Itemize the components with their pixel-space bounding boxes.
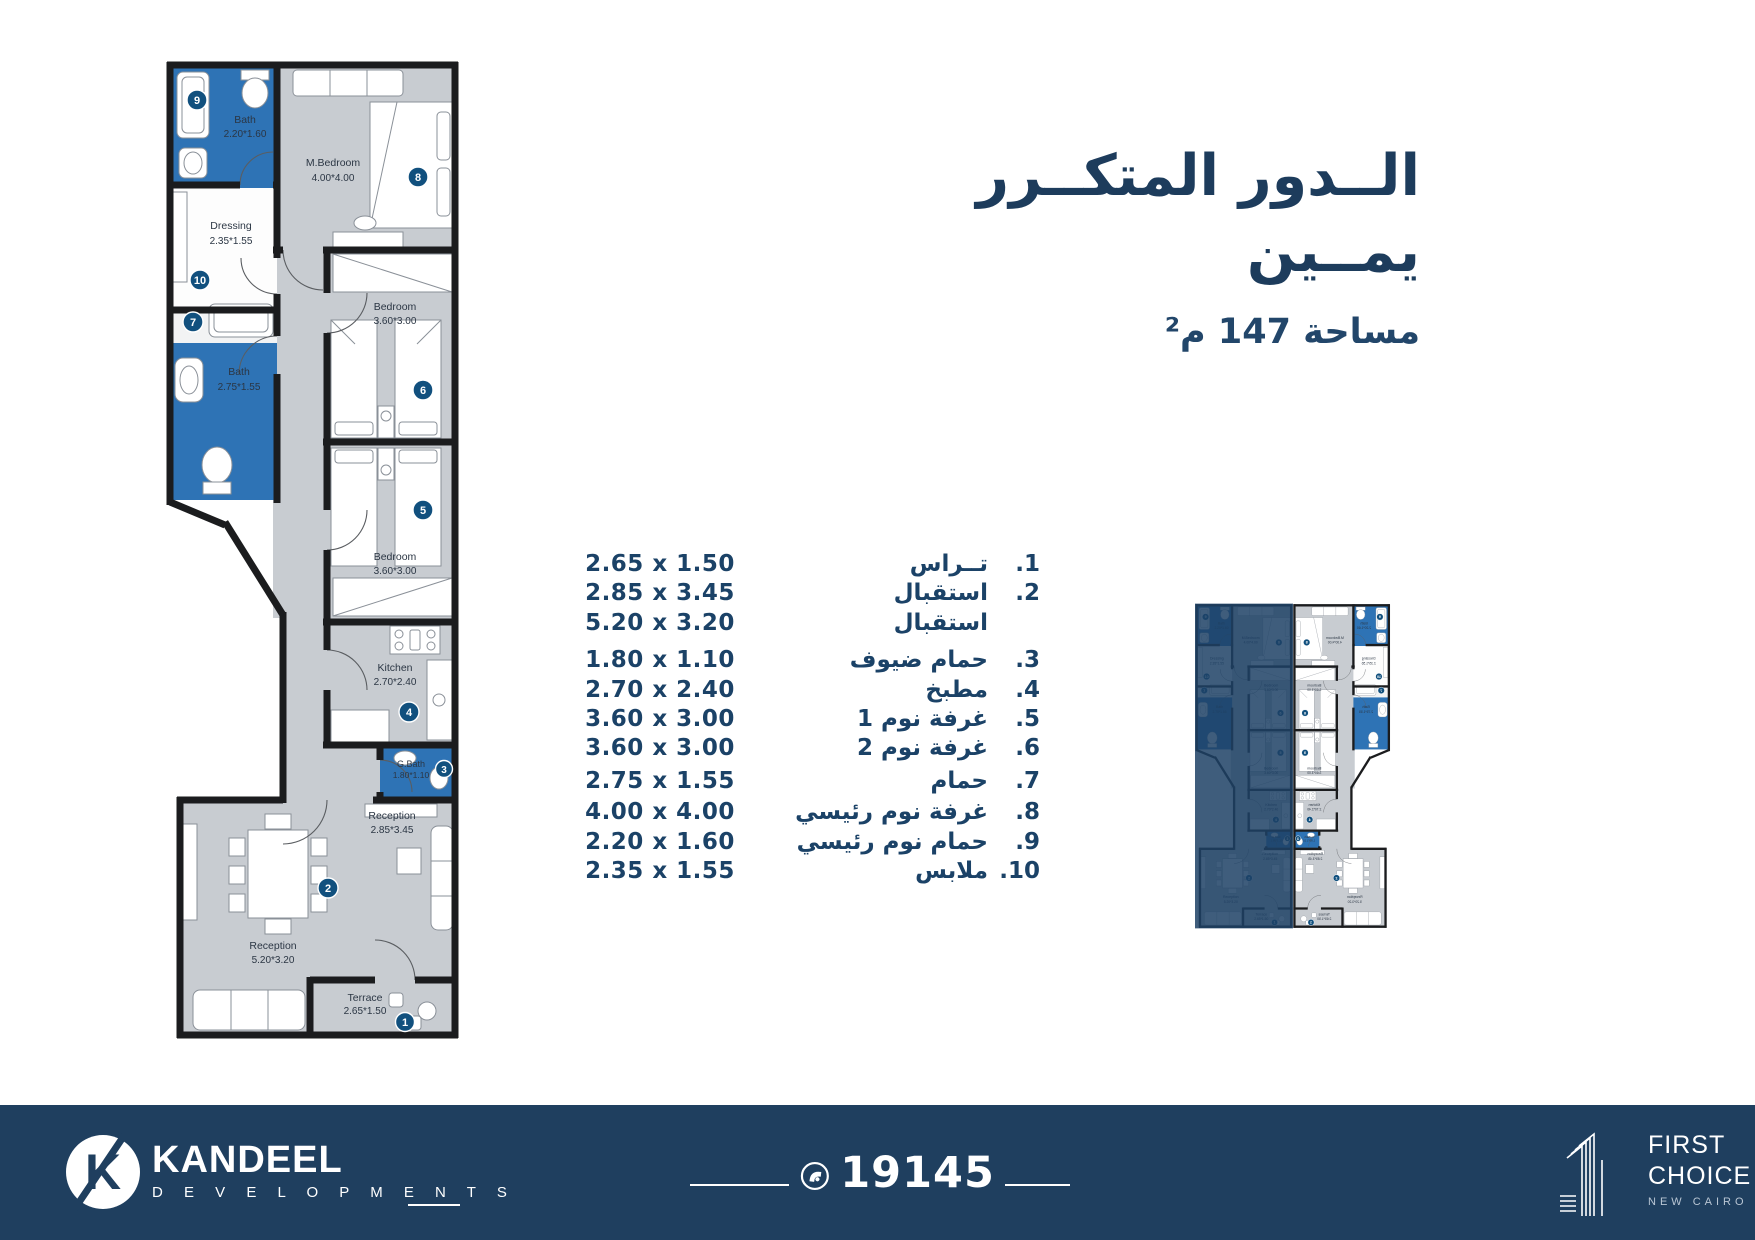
room-label: Bedroom (374, 301, 417, 313)
chair-icon (229, 866, 245, 884)
room-number-7: 7 (183, 312, 203, 332)
room-dimensions: 4.00 x 4.00 (580, 799, 740, 825)
room-label: Bath (228, 366, 250, 378)
kitchen-counter-icon (427, 660, 452, 740)
phone-number: 19145 (840, 1152, 995, 1195)
room-number: 9. (994, 829, 1040, 855)
room-dims: 3.60*3.00 (374, 316, 417, 327)
toilet-tank-icon (203, 482, 231, 494)
chair-icon (389, 993, 403, 1007)
floor-plan-svg: Bath 2.20*1.60 M.Bedroom 4.00*4.00 Dress… (165, 60, 460, 1040)
thumb-unit-right (1293, 604, 1389, 927)
svg-text:1: 1 (402, 1017, 408, 1029)
room-name: استقبال (894, 610, 988, 636)
first-choice-text: FIRST CHOICE NEW CAIRO (1648, 1130, 1751, 1208)
bed-icon (331, 320, 377, 438)
room-dims: 2.65*1.50 (344, 1006, 387, 1017)
room-number: 4. (994, 677, 1040, 703)
svg-text:4: 4 (406, 707, 413, 719)
room-number-6: 6 (413, 380, 433, 400)
sofa-icon (293, 70, 403, 96)
legend-row: 2.75 x 1.55حمام7. (560, 768, 1040, 795)
room-legend: 2.65 x 1.50تــراس1. 2.85 x 3.45استقبال2.… (560, 545, 1040, 895)
dining-table-icon (248, 830, 308, 918)
divider-line (690, 1184, 789, 1186)
legend-row: 2.85 x 3.45استقبال2. (560, 580, 1040, 607)
room-name: غرفة نوم 1 (857, 706, 988, 732)
wardrobe-icon (173, 192, 187, 282)
room-dims: 4.00*4.00 (312, 173, 355, 184)
highlighted-unit-overlay (1195, 604, 1293, 929)
room-name: ملابس (915, 858, 988, 884)
side-table-icon (397, 848, 421, 874)
title-line-2: يمــين (780, 214, 1420, 290)
svg-text:8: 8 (415, 172, 421, 184)
chair-icon (311, 838, 327, 856)
phone-block: 19145 (690, 1152, 1070, 1195)
area-text: مساحة 147 م² (780, 312, 1420, 352)
room-dims: 2.85*3.45 (371, 825, 414, 836)
legend-row: 4.00 x 4.00غرفة نوم رئيسي8. (560, 799, 1040, 826)
svg-text:2: 2 (325, 883, 331, 895)
title-block: الــدور المتكــرر يمــين مساحة 147 م² (780, 138, 1420, 352)
svg-text:6: 6 (420, 385, 426, 397)
bed-icon (395, 320, 441, 438)
toilet-icon (202, 447, 232, 483)
pillow-icon (399, 422, 437, 435)
thumbnail-svg (1195, 597, 1391, 935)
legend-row: 2.65 x 1.50تــراس1. (560, 551, 1040, 578)
room-number-5: 5 (413, 500, 433, 520)
room-label: Reception (368, 810, 415, 822)
room-number-2: 2 (318, 878, 338, 898)
room-number: 5. (994, 706, 1040, 732)
room-label: Terrace (347, 992, 382, 1004)
flyer-page: Bath 2.20*1.60 M.Bedroom 4.00*4.00 Dress… (0, 0, 1755, 1240)
room-name: مطبخ (925, 677, 988, 703)
room-number: 6. (994, 735, 1040, 761)
room-dimensions: 2.70 x 2.40 (580, 677, 740, 703)
room-name: حمام نوم رئيسي (797, 829, 988, 855)
room-dimensions: 2.85 x 3.45 (580, 580, 740, 606)
phone-icon (799, 1157, 831, 1195)
desk-icon (333, 232, 403, 247)
room-number-1: 1 (396, 1013, 415, 1032)
room-number-9: 9 (187, 90, 207, 110)
first-choice-numeral-icon (1560, 1126, 1644, 1220)
room-name: استقبال (894, 580, 988, 606)
room-name: حمام (931, 768, 989, 794)
legend-row: 2.20 x 1.60حمام نوم رئيسي9. (560, 829, 1040, 856)
room-dims: 2.75*1.55 (218, 382, 261, 393)
room-dims: 2.20*1.60 (224, 129, 267, 140)
legend-row: 2.70 x 2.40مطبخ4. (560, 677, 1040, 704)
room-label: Reception (249, 940, 296, 952)
room-number: 7. (994, 768, 1040, 794)
pillow-icon (437, 112, 450, 160)
room-dimensions: 2.65 x 1.50 (580, 551, 740, 577)
pillow-icon (335, 450, 373, 463)
room-dims: 1.80*1.10 (393, 770, 430, 780)
room-dimensions: 3.60 x 3.00 (580, 706, 740, 732)
corridor-upper (273, 250, 331, 618)
svg-text:9: 9 (194, 95, 200, 107)
room-number-10: 10 (190, 270, 210, 290)
legend-row: 1.80 x 1.10حمام ضيوف3. (560, 647, 1040, 674)
partner-line-2: CHOICE (1648, 1161, 1751, 1192)
chair-icon (229, 894, 245, 912)
room-label: Dressing (210, 220, 252, 232)
room-number: 1. (994, 551, 1040, 577)
room-number-3: 3 (436, 761, 453, 778)
building-thumbnail (1195, 597, 1391, 935)
partner-line-1: FIRST (1648, 1130, 1751, 1161)
floor-plan: Bath 2.20*1.60 M.Bedroom 4.00*4.00 Dress… (165, 60, 460, 1040)
svg-text:10: 10 (194, 275, 206, 287)
partner-subtitle: NEW CAIRO (1648, 1196, 1751, 1208)
room-dimensions: 2.35 x 1.55 (580, 858, 740, 884)
sofa-icon (431, 826, 453, 930)
chair-icon (229, 838, 245, 856)
room-number: 2. (994, 580, 1040, 606)
brand-subtitle: D E V E L O P M E N T S (152, 1180, 515, 1206)
chair-icon (265, 814, 291, 829)
wall (170, 502, 225, 525)
brand-underline (408, 1204, 460, 1206)
room-dimensions: 2.20 x 1.60 (580, 829, 740, 855)
pillow-icon (437, 168, 450, 216)
tv-unit-icon (183, 824, 197, 920)
kitchen-cabinet-icon (331, 710, 389, 742)
title-line-1: الــدور المتكــرر (780, 138, 1420, 214)
chair-icon (265, 919, 291, 934)
room-dims: 3.60*3.00 (374, 566, 417, 577)
room-dimensions: 1.80 x 1.10 (580, 647, 740, 673)
pillow-icon (335, 422, 373, 435)
chair-icon (354, 216, 376, 230)
divider-line (1005, 1184, 1070, 1186)
legend-row: 3.60 x 3.00غرفة نوم 26. (560, 735, 1040, 762)
hallway (323, 745, 383, 803)
svg-text:7: 7 (190, 317, 196, 329)
svg-text:5: 5 (420, 505, 426, 517)
toilet-icon (242, 78, 268, 108)
room-label: Kitchen (377, 662, 412, 674)
room-label: M.Bedroom (306, 157, 361, 169)
room-dimensions: 5.20 x 3.20 (580, 610, 740, 636)
room-dims: 2.35*1.55 (210, 236, 253, 247)
brand-block: KANDEEL D E V E L O P M E N T S (152, 1140, 515, 1206)
room-label: Bath (234, 114, 256, 126)
room-dims: 5.20*3.20 (252, 955, 295, 966)
room-label: Bedroom (374, 551, 417, 563)
room-number-8: 8 (408, 167, 428, 187)
legend-row: 3.60 x 3.00غرفة نوم 15. (560, 706, 1040, 733)
legend-row: 2.35 x 1.55ملابس10. (560, 858, 1040, 885)
room-label: G.Bath (397, 759, 425, 769)
room-number-4: 4 (399, 702, 419, 722)
room-name: حمام ضيوف (850, 647, 988, 673)
sink-icon (175, 358, 203, 402)
room-name: غرفة نوم 2 (857, 735, 988, 761)
room-dims: 2.70*2.40 (374, 677, 417, 688)
room-dimensions: 3.60 x 3.00 (580, 735, 740, 761)
legend-row: 5.20 x 3.20استقبال (560, 610, 1040, 637)
room-name: تــراس (910, 551, 988, 577)
sofa-icon (193, 990, 305, 1030)
room-number: 10. (994, 858, 1040, 884)
pillow-icon (399, 450, 437, 463)
brand-name: KANDEEL (152, 1140, 515, 1180)
room-number: 3. (994, 647, 1040, 673)
svg-text:3: 3 (441, 765, 447, 776)
room-name: غرفة نوم رئيسي (795, 799, 988, 825)
room-number: 8. (994, 799, 1040, 825)
room-dimensions: 2.75 x 1.55 (580, 768, 740, 794)
